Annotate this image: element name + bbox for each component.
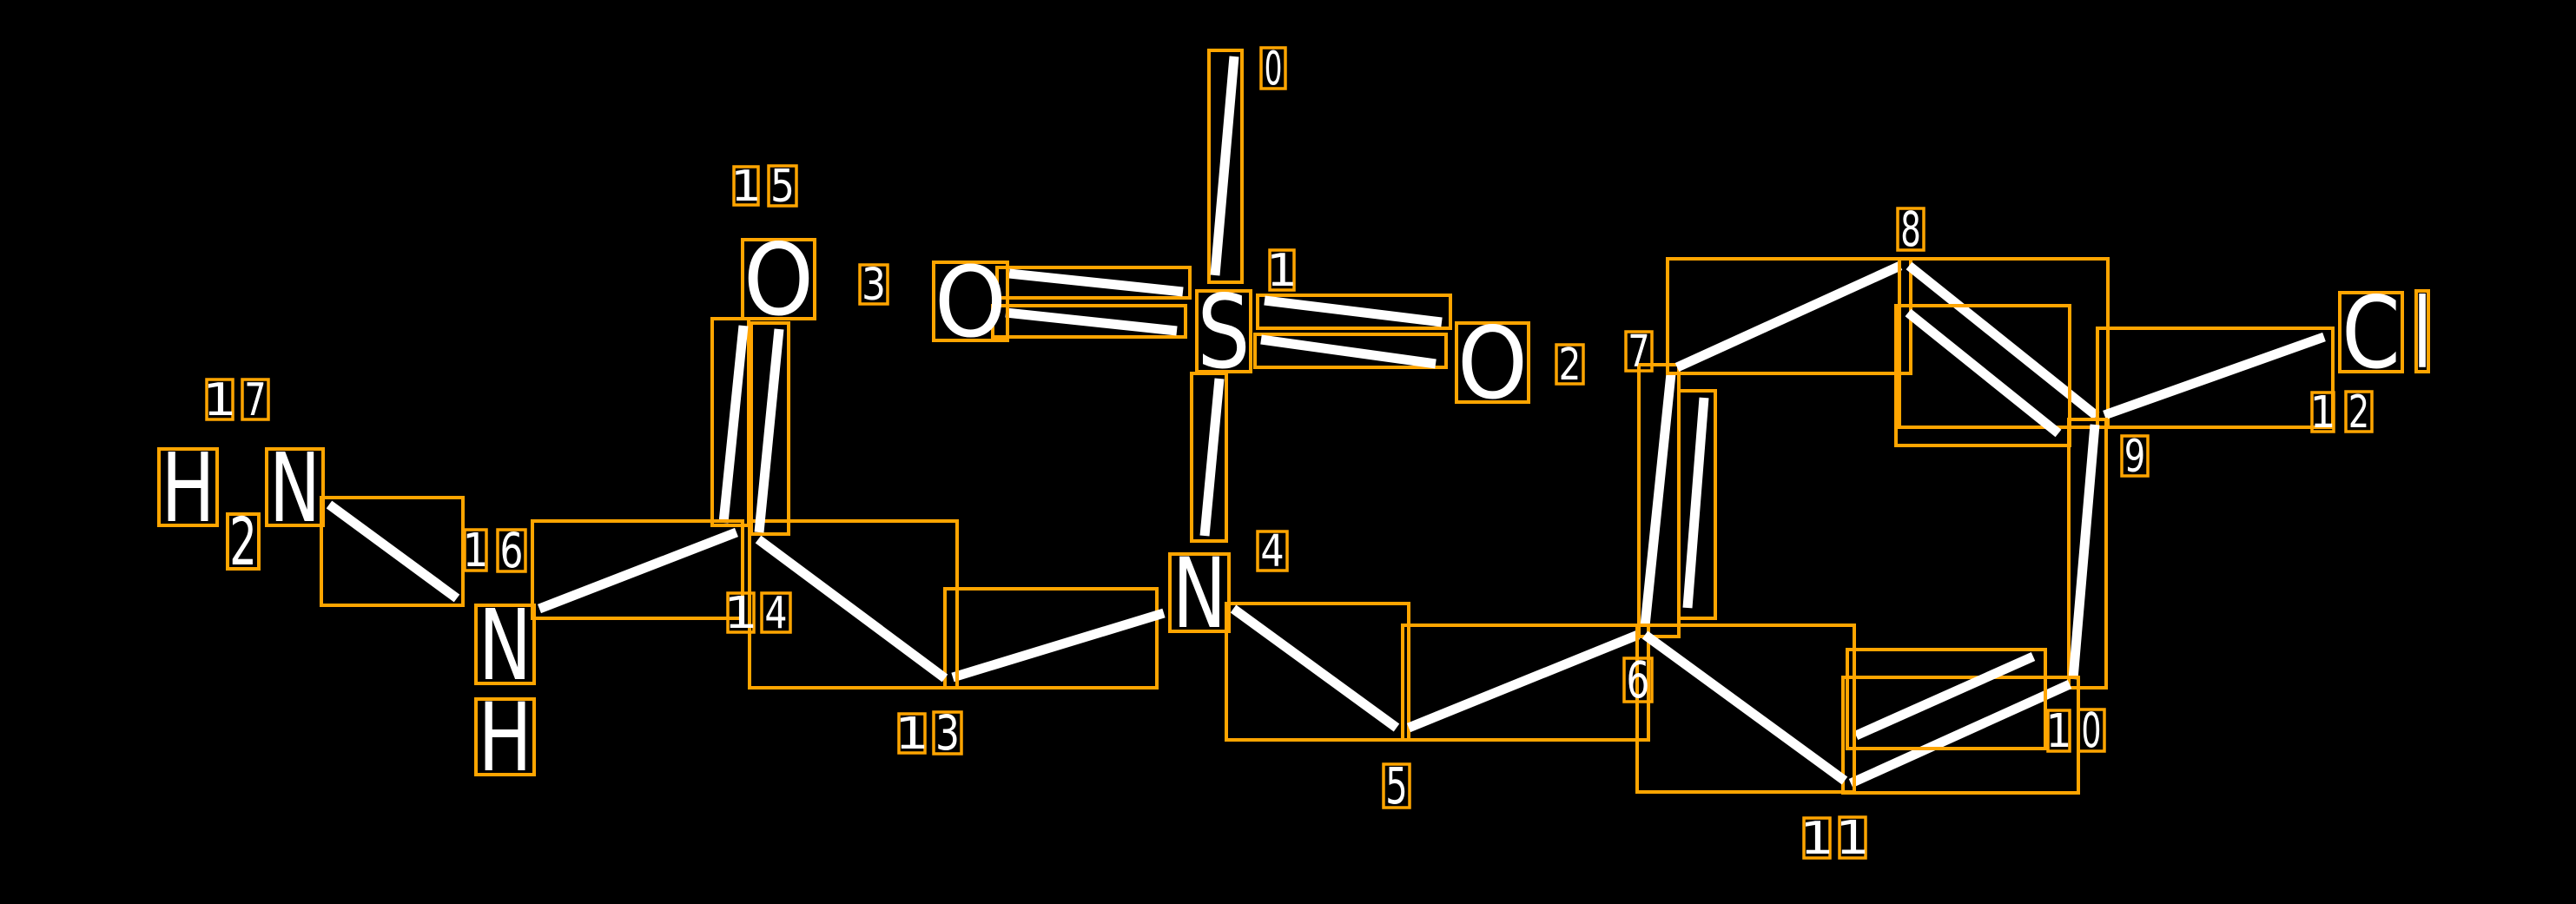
atom-index-1-digit-0: 1 bbox=[1266, 244, 1298, 297]
molecule-diagram: SOOONNHH2NCl01234567891011121314151617 bbox=[0, 0, 2576, 904]
atom-index-15-digit-1: 5 bbox=[770, 160, 795, 213]
atom-12-chlorine-l-symbol: l bbox=[2412, 278, 2432, 391]
atom-2-oxygen-symbol: O bbox=[1457, 306, 1528, 421]
atom-index-9-digit-0: 9 bbox=[2124, 430, 2145, 482]
atom-17-h-count-symbol: 2 bbox=[229, 505, 257, 581]
atom-index-13-digit-1: 3 bbox=[935, 705, 960, 761]
atom-15-oxygen-symbol: O bbox=[743, 222, 814, 338]
atom-index-2-digit-0: 2 bbox=[1559, 338, 1582, 390]
atom-4-nitrogen-symbol: N bbox=[1172, 538, 1226, 650]
atom-index-14-digit-0: 1 bbox=[723, 588, 758, 639]
atom-17-nitrogen-symbol: N bbox=[269, 433, 320, 544]
atom-index-12-digit-1: 2 bbox=[2348, 386, 2369, 438]
atom-index-7-digit-0: 7 bbox=[1628, 326, 1649, 377]
diagram-background bbox=[0, 0, 2576, 904]
atom-17-hydrogen-symbol: H bbox=[161, 432, 215, 544]
atom-3-oxygen-symbol: O bbox=[935, 246, 1007, 360]
atom-index-3-digit-0: 3 bbox=[862, 260, 886, 311]
atom-index-10-digit-1: 0 bbox=[2081, 703, 2101, 758]
atom-index-4-digit-0: 4 bbox=[1260, 526, 1284, 577]
atom-index-8-digit-0: 8 bbox=[1900, 203, 1921, 258]
atom-index-6-digit-0: 6 bbox=[1627, 650, 1650, 709]
atom-index-16-digit-0: 1 bbox=[463, 523, 489, 577]
molecule-canvas: SOOONNHH2NCl01234567891011121314151617 bbox=[0, 0, 2576, 904]
atom-index-17-digit-1: 7 bbox=[244, 373, 266, 426]
atom-index-10-digit-0: 1 bbox=[2046, 703, 2072, 758]
atom-index-17-digit-0: 1 bbox=[202, 373, 237, 426]
atom-12-chlorine-c-symbol: C bbox=[2342, 275, 2401, 390]
atom-index-11-digit-1: 1 bbox=[1835, 810, 1870, 865]
atom-index-0-digit-0: 0 bbox=[1265, 43, 1283, 96]
atom-index-5-digit-0: 5 bbox=[1385, 757, 1407, 815]
atom-index-11-digit-0: 1 bbox=[1800, 812, 1834, 865]
atom-16-hydrogen-symbol: H bbox=[478, 683, 532, 793]
atom-index-15-digit-0: 1 bbox=[730, 162, 762, 211]
atom-index-16-digit-1: 6 bbox=[500, 524, 524, 579]
atom-index-12-digit-0: 1 bbox=[2310, 386, 2336, 438]
atom-index-13-digit-0: 1 bbox=[895, 709, 929, 760]
atom-index-14-digit-1: 4 bbox=[764, 587, 787, 638]
atom-1-sulfur-symbol: S bbox=[1197, 274, 1250, 392]
